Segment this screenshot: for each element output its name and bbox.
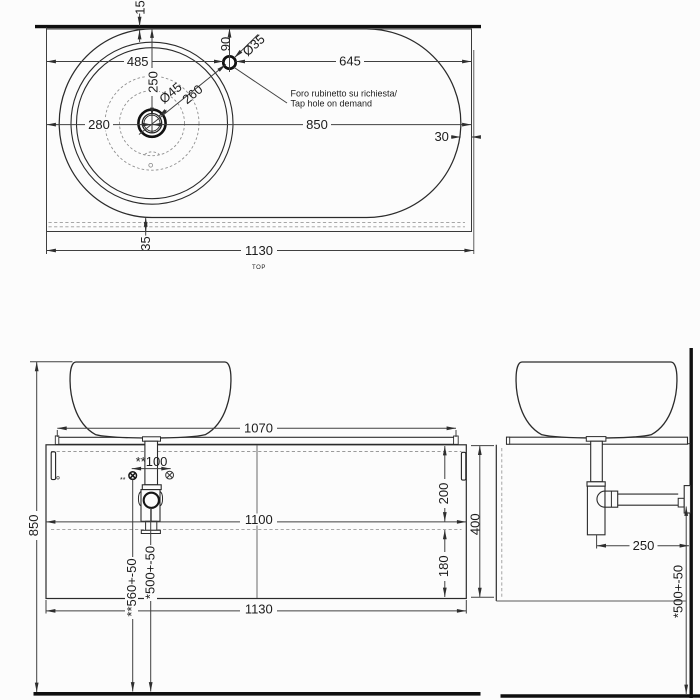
svg-text:**100: **100 (136, 454, 168, 469)
svg-text:280: 280 (88, 117, 110, 132)
svg-text:1070: 1070 (244, 421, 273, 436)
svg-text:35: 35 (138, 236, 153, 250)
svg-text:**: ** (120, 477, 126, 484)
svg-text:Ø45: Ø45 (156, 79, 184, 106)
svg-text:400: 400 (467, 513, 482, 535)
svg-text:645: 645 (339, 54, 361, 69)
svg-text:90: 90 (218, 37, 233, 51)
svg-text:180: 180 (436, 555, 451, 577)
svg-text:15: 15 (133, 0, 148, 14)
svg-text:30: 30 (434, 129, 448, 144)
svg-text:1130: 1130 (245, 243, 273, 258)
svg-text:485: 485 (127, 54, 149, 69)
svg-text:**560+-50: **560+-50 (124, 558, 139, 616)
svg-text:200: 200 (436, 483, 451, 505)
svg-text:Ø35: Ø35 (239, 31, 267, 59)
svg-text:1100: 1100 (245, 512, 273, 527)
svg-text:*500+-50: *500+-50 (671, 565, 686, 618)
svg-text:260: 260 (179, 82, 205, 107)
svg-text:850: 850 (306, 117, 328, 132)
svg-text:250: 250 (145, 71, 160, 93)
svg-text:TOP: TOP (252, 265, 266, 271)
svg-text:1130: 1130 (245, 601, 273, 616)
svg-text:850: 850 (26, 515, 41, 537)
svg-text:*500+-50: *500+-50 (143, 546, 158, 599)
svg-text:Tap hole on demand: Tap hole on demand (291, 99, 373, 109)
svg-text:Foro rubinetto su richiesta/: Foro rubinetto su richiesta/ (291, 89, 398, 99)
svg-text:250: 250 (633, 538, 655, 553)
